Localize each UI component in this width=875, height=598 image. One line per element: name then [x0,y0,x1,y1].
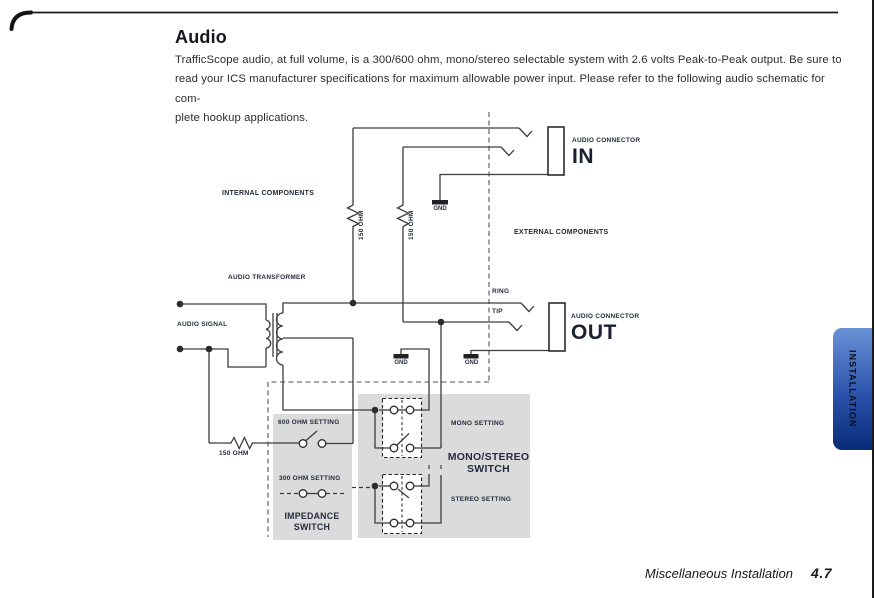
transformer-primary-coil [266,320,271,348]
paragraph-line: read your ICS manufacturer specification… [175,70,843,109]
resistor-label-3: 150 OHM [219,450,249,457]
footer-section-name: Miscellaneous Installation [645,566,793,581]
top-rule [12,13,839,30]
gnd-bar-external [464,354,479,359]
internal-components-label: INTERNAL COMPONENTS [222,190,314,197]
mono-stereo-switch-title: MONO/STEREO SWITCH [446,452,531,475]
setting-600ohm-label: 600 OHM SETTING [278,419,340,426]
mono-bottom-contact-left [390,444,398,452]
mono-top-contact-left [390,406,398,414]
impedance-300-contact-right [318,490,326,498]
resistor-150ohm-2 [398,202,409,229]
mono-top-contact-right [406,406,414,414]
installation-tab-label: INSTALLATION [848,350,858,428]
audio-transformer-label: AUDIO TRANSFORMER [228,274,306,281]
audio-connector-in-caption: AUDIO CONNECTOR [572,137,640,144]
intro-paragraph: TrafficScope audio, at full volume, is a… [175,51,843,128]
stereo-bottom-contact-right [406,519,414,527]
paragraph-line: TrafficScope audio, at full volume, is a… [175,51,843,70]
mono-bottom-contact-right [406,444,414,452]
ring-label: RING [492,288,509,295]
impedance-switch-title: IMPEDANCE SWITCH [272,511,352,533]
resistor-150ohm-1 [348,202,359,229]
page-right-border [872,0,874,598]
stereo-top-contact-left [390,482,398,490]
external-components-label: EXTERNAL COMPONENTS [514,229,608,236]
gnd-bar-top [432,200,448,205]
audio-connector-out-port: OUT [571,321,617,345]
manual-page: { "header": { "title": "Audio", "paragra… [0,0,875,598]
paragraph-line: plete hookup applications. [175,109,843,128]
audio-connector-in-body [548,127,564,175]
page-footer: Miscellaneous Installation4.7 [645,565,832,581]
audio-connector-in-port: IN [572,145,594,169]
audio-signal-label: AUDIO SIGNAL [177,321,227,328]
impedance-600-contact-right [318,440,326,448]
resistor-150ohm-3 [228,438,255,449]
gnd-bar-internal [394,354,409,359]
setting-mono-label: MONO SETTING [451,420,504,427]
stereo-top-contact-right [406,482,414,490]
gnd-label-top: GND [431,206,449,212]
footer-page-number: 4.7 [811,565,832,581]
gnd-label-internal: GND [392,360,410,366]
setting-300ohm-label: 300 OHM SETTING [279,475,341,482]
resistor-label-1: 150 OHM [358,200,365,240]
resistor-label-2: 150 OHM [408,200,415,240]
impedance-600-contact-left [299,440,307,448]
impedance-300-contact-left [299,490,307,498]
stereo-bottom-contact-left [390,519,398,527]
audio-connector-out-caption: AUDIO CONNECTOR [571,313,639,320]
gnd-label-external: GND [463,360,481,366]
installation-section-tab: INSTALLATION [833,328,872,450]
page-title: Audio [175,27,227,48]
tip-label: TIP [492,308,503,315]
audio-connector-out-body [549,303,565,351]
ground-symbols [394,200,479,359]
setting-stereo-label: STEREO SETTING [451,496,511,503]
